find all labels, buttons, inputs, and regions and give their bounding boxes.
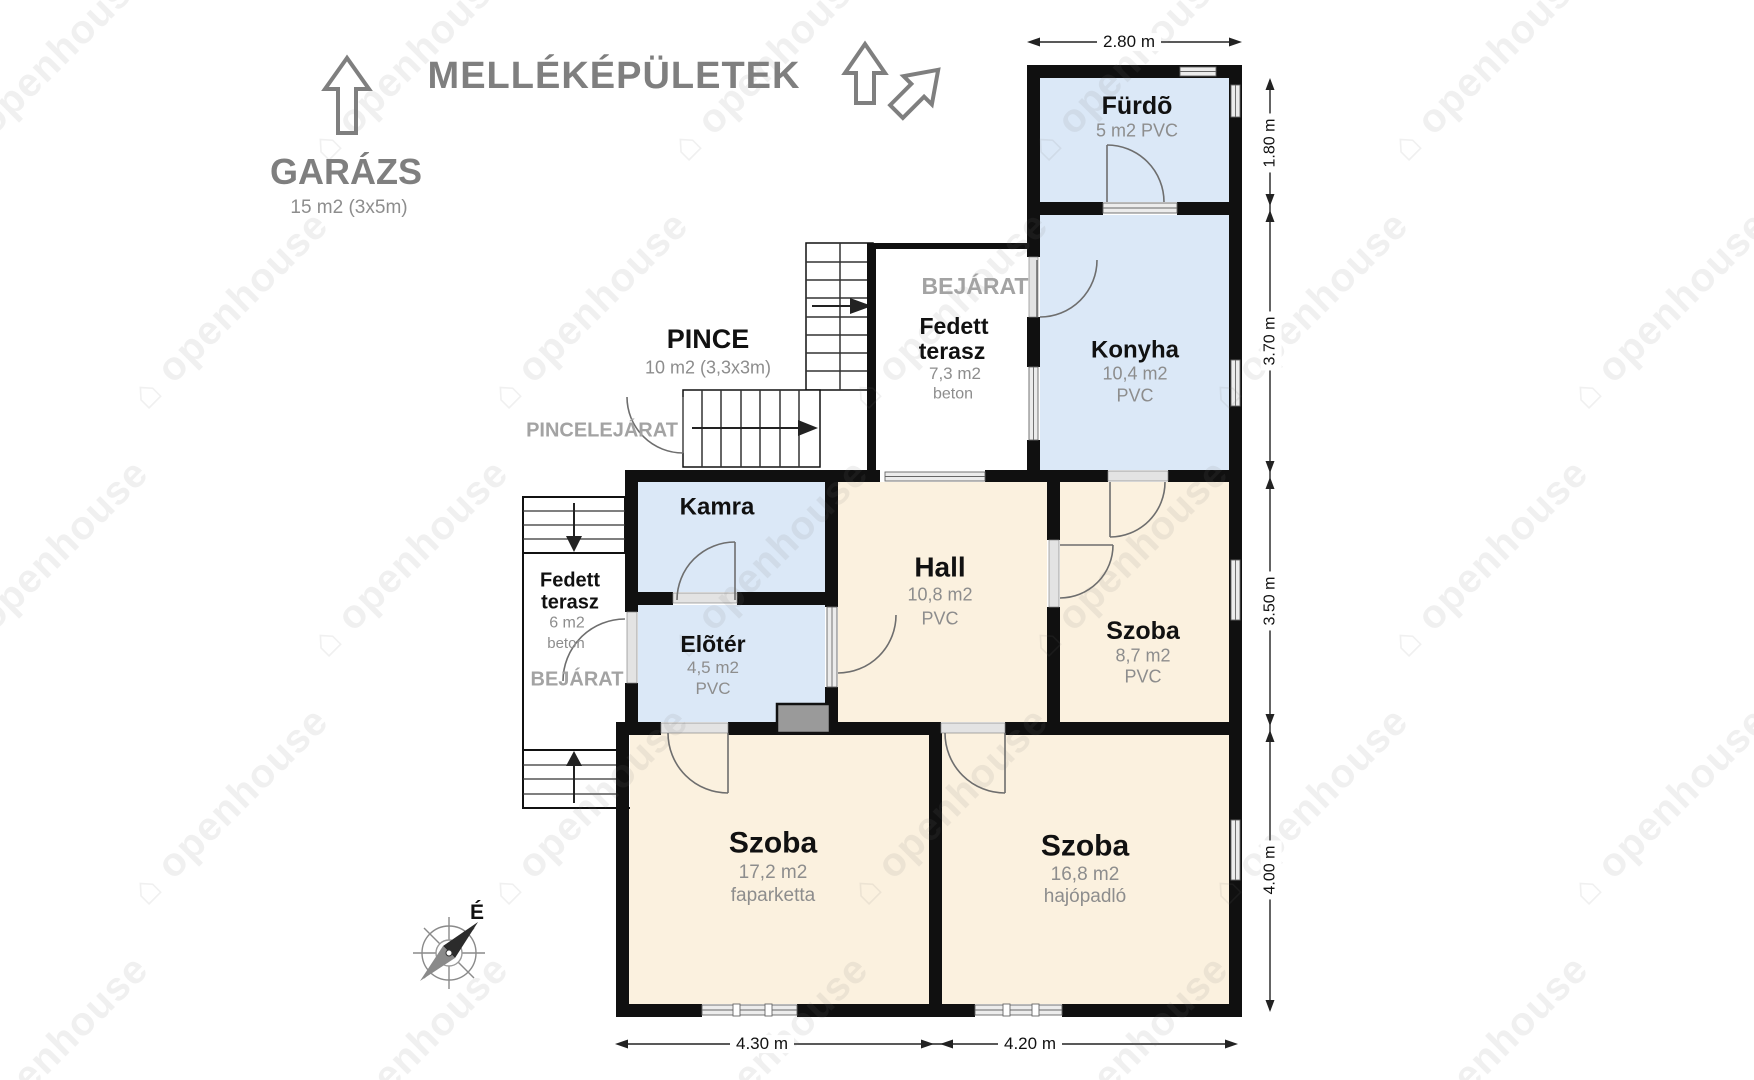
stairs-cellar [683, 390, 820, 467]
floorplan-canvas: ⌂ openhouse⌂ openhouse⌂ openhouse⌂ openh… [0, 0, 1754, 1080]
room-szoba-jobb-area: 16,8 m2 [1051, 865, 1120, 885]
room-szoba-jobb-floor: hajópadló [1044, 887, 1126, 907]
terrace-top-name2: terasz [919, 339, 985, 363]
room-kamra-name: Kamra [680, 494, 755, 519]
label-cellar-entrance: PINCELEJÁRAT [526, 421, 678, 442]
outbuilding-arrow-up-icon [845, 44, 885, 103]
room-szoba-kis-name: Szoba [1106, 618, 1180, 644]
outbuilding-arrow-ne-icon [882, 56, 952, 126]
room-hall-area: 10,8 m2 [907, 586, 972, 605]
dim-bottom-2: 4.20 m [998, 1035, 1062, 1053]
terrace-top-name1: Fedett [920, 314, 989, 338]
garage-arrow-up-icon [325, 58, 369, 133]
room-hall-floor: PVC [921, 610, 958, 629]
room-szoba-jobb-name: Szoba [1041, 830, 1129, 862]
room-eloter-name: Elõtér [680, 632, 745, 656]
compass-rose [413, 917, 485, 989]
terrace-left-floor: beton [547, 636, 585, 652]
terrace-left-name1: Fedett [540, 571, 600, 592]
label-garage: GARÁZS [270, 153, 422, 191]
room-furdo-info: 5 m2 PVC [1096, 122, 1178, 141]
dim-bottom-1: 4.30 m [730, 1035, 794, 1053]
room-konyha-floor: PVC [1116, 387, 1153, 406]
stairs-upper [806, 243, 873, 390]
label-cellar: PINCE [667, 325, 750, 353]
floorplan-drawing [0, 0, 1754, 1080]
dim-right-4: 4.00 m [1261, 841, 1282, 900]
stove-block [777, 704, 830, 733]
label-entrance-top: BEJÁRAT [922, 274, 1029, 298]
room-szoba-kis-floor: PVC [1124, 668, 1161, 687]
room-konyha-area: 10,4 m2 [1102, 365, 1167, 384]
dim-right-3: 3.50 m [1261, 572, 1282, 631]
room-fills [626, 78, 1229, 1004]
title-outbuildings: MELLÉKÉPÜLETEK [428, 57, 801, 97]
room-eloter-area: 4,5 m2 [687, 659, 739, 677]
room-furdo-name: Fürdõ [1102, 93, 1173, 119]
room-szoba-bal-area: 17,2 m2 [739, 863, 808, 883]
dim-right-1: 1.80 m [1261, 114, 1282, 173]
label-garage-info: 15 m2 (3x5m) [290, 198, 407, 218]
room-konyha-name: Konyha [1091, 337, 1179, 362]
terrace-left-area: 6 m2 [549, 616, 585, 633]
room-szoba-bal-floor: faparketta [731, 886, 816, 906]
label-entrance-left: BEJÁRAT [531, 670, 624, 691]
terrace-top-area: 7,3 m2 [929, 365, 981, 383]
terrace-top-floor: beton [933, 387, 973, 404]
label-cellar-info: 10 m2 (3,3x3m) [645, 359, 771, 378]
dim-right-2: 3.70 m [1261, 312, 1282, 371]
room-hall-name: Hall [914, 552, 965, 581]
dim-top: 2.80 m [1097, 33, 1161, 51]
room-eloter-floor: PVC [696, 680, 731, 698]
compass-north-label: É [470, 902, 484, 924]
terrace-left-name2: terasz [541, 593, 599, 614]
room-szoba-kis-area: 8,7 m2 [1115, 647, 1170, 666]
room-szoba-bal-name: Szoba [729, 827, 817, 859]
